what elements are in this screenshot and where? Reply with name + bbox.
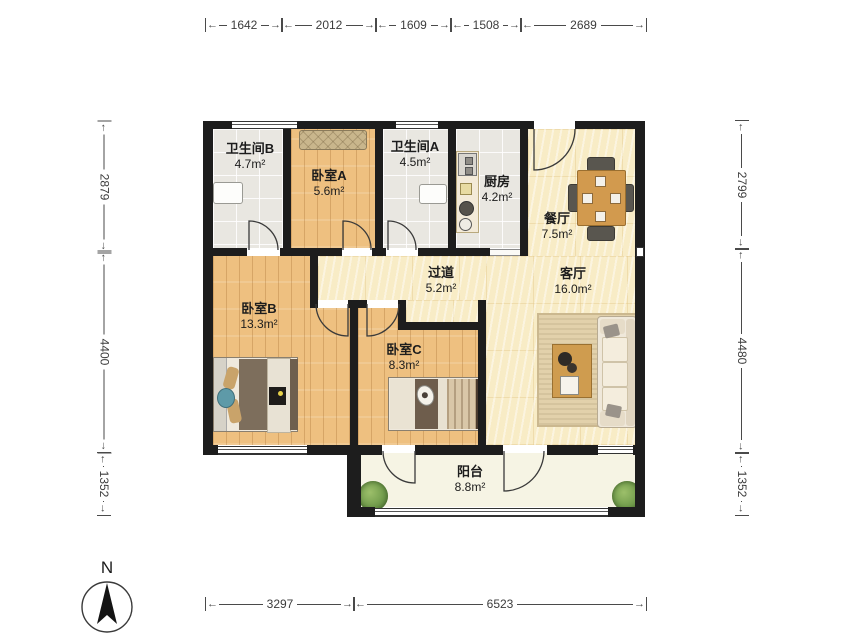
north-arrow-icon: N [76,554,138,638]
room-label: 卧室C 8.3m² [359,342,449,373]
dimension-right-2: ←4480→ [735,248,749,454]
room-label: 阳台 8.8m² [425,464,515,495]
dimension-left-1: ←2879→ [98,121,112,254]
room-label: 客厅 16.0m² [528,266,618,297]
dimension-top-5: ←2689→ [520,18,647,32]
dimension-bottom-1: ←3297→ [205,597,355,611]
dimension-top-2: ←2012→ [281,18,377,32]
room-label: 卧室B 13.3m² [214,301,304,332]
room-label: 厨房 4.2m² [452,174,542,205]
room-label: 卫生间A 4.5m² [370,139,460,170]
dimension-right-3: ←1352→ [735,452,749,516]
floor-plan-canvas: 卫生间B 4.7m² 卧室A 5.6m² 卫生间A 4.5m² 厨房 4.2m²… [0,0,853,639]
dimension-bottom-2: ←6523→ [353,597,647,611]
door-arc [249,221,278,250]
entry-door-arc [534,129,575,170]
room-label: 过道 5.2m² [396,265,486,296]
dimension-right-1: ←2799→ [735,120,749,250]
compass-label: N [101,558,113,577]
dimension-top-1: ←1642→ [205,18,283,32]
dimension-left-2: ←4400→ [98,251,112,454]
room-label: 卫生间B 4.7m² [205,141,295,172]
door-arcs-layer [0,0,853,639]
door-arc [367,304,399,336]
door-arc [316,304,348,336]
door-arc [343,221,371,250]
dimension-left-3: ←1352→ [97,452,111,516]
door-arc [388,221,416,250]
dimension-top-3: ←1609→ [375,18,452,32]
compass-needle [97,583,117,624]
dimension-top-4: ←1508→ [450,18,522,32]
room-label: 卧室A 5.6m² [284,168,374,199]
door-arc [383,451,415,483]
room-label: 餐厅 7.5m² [512,211,602,242]
